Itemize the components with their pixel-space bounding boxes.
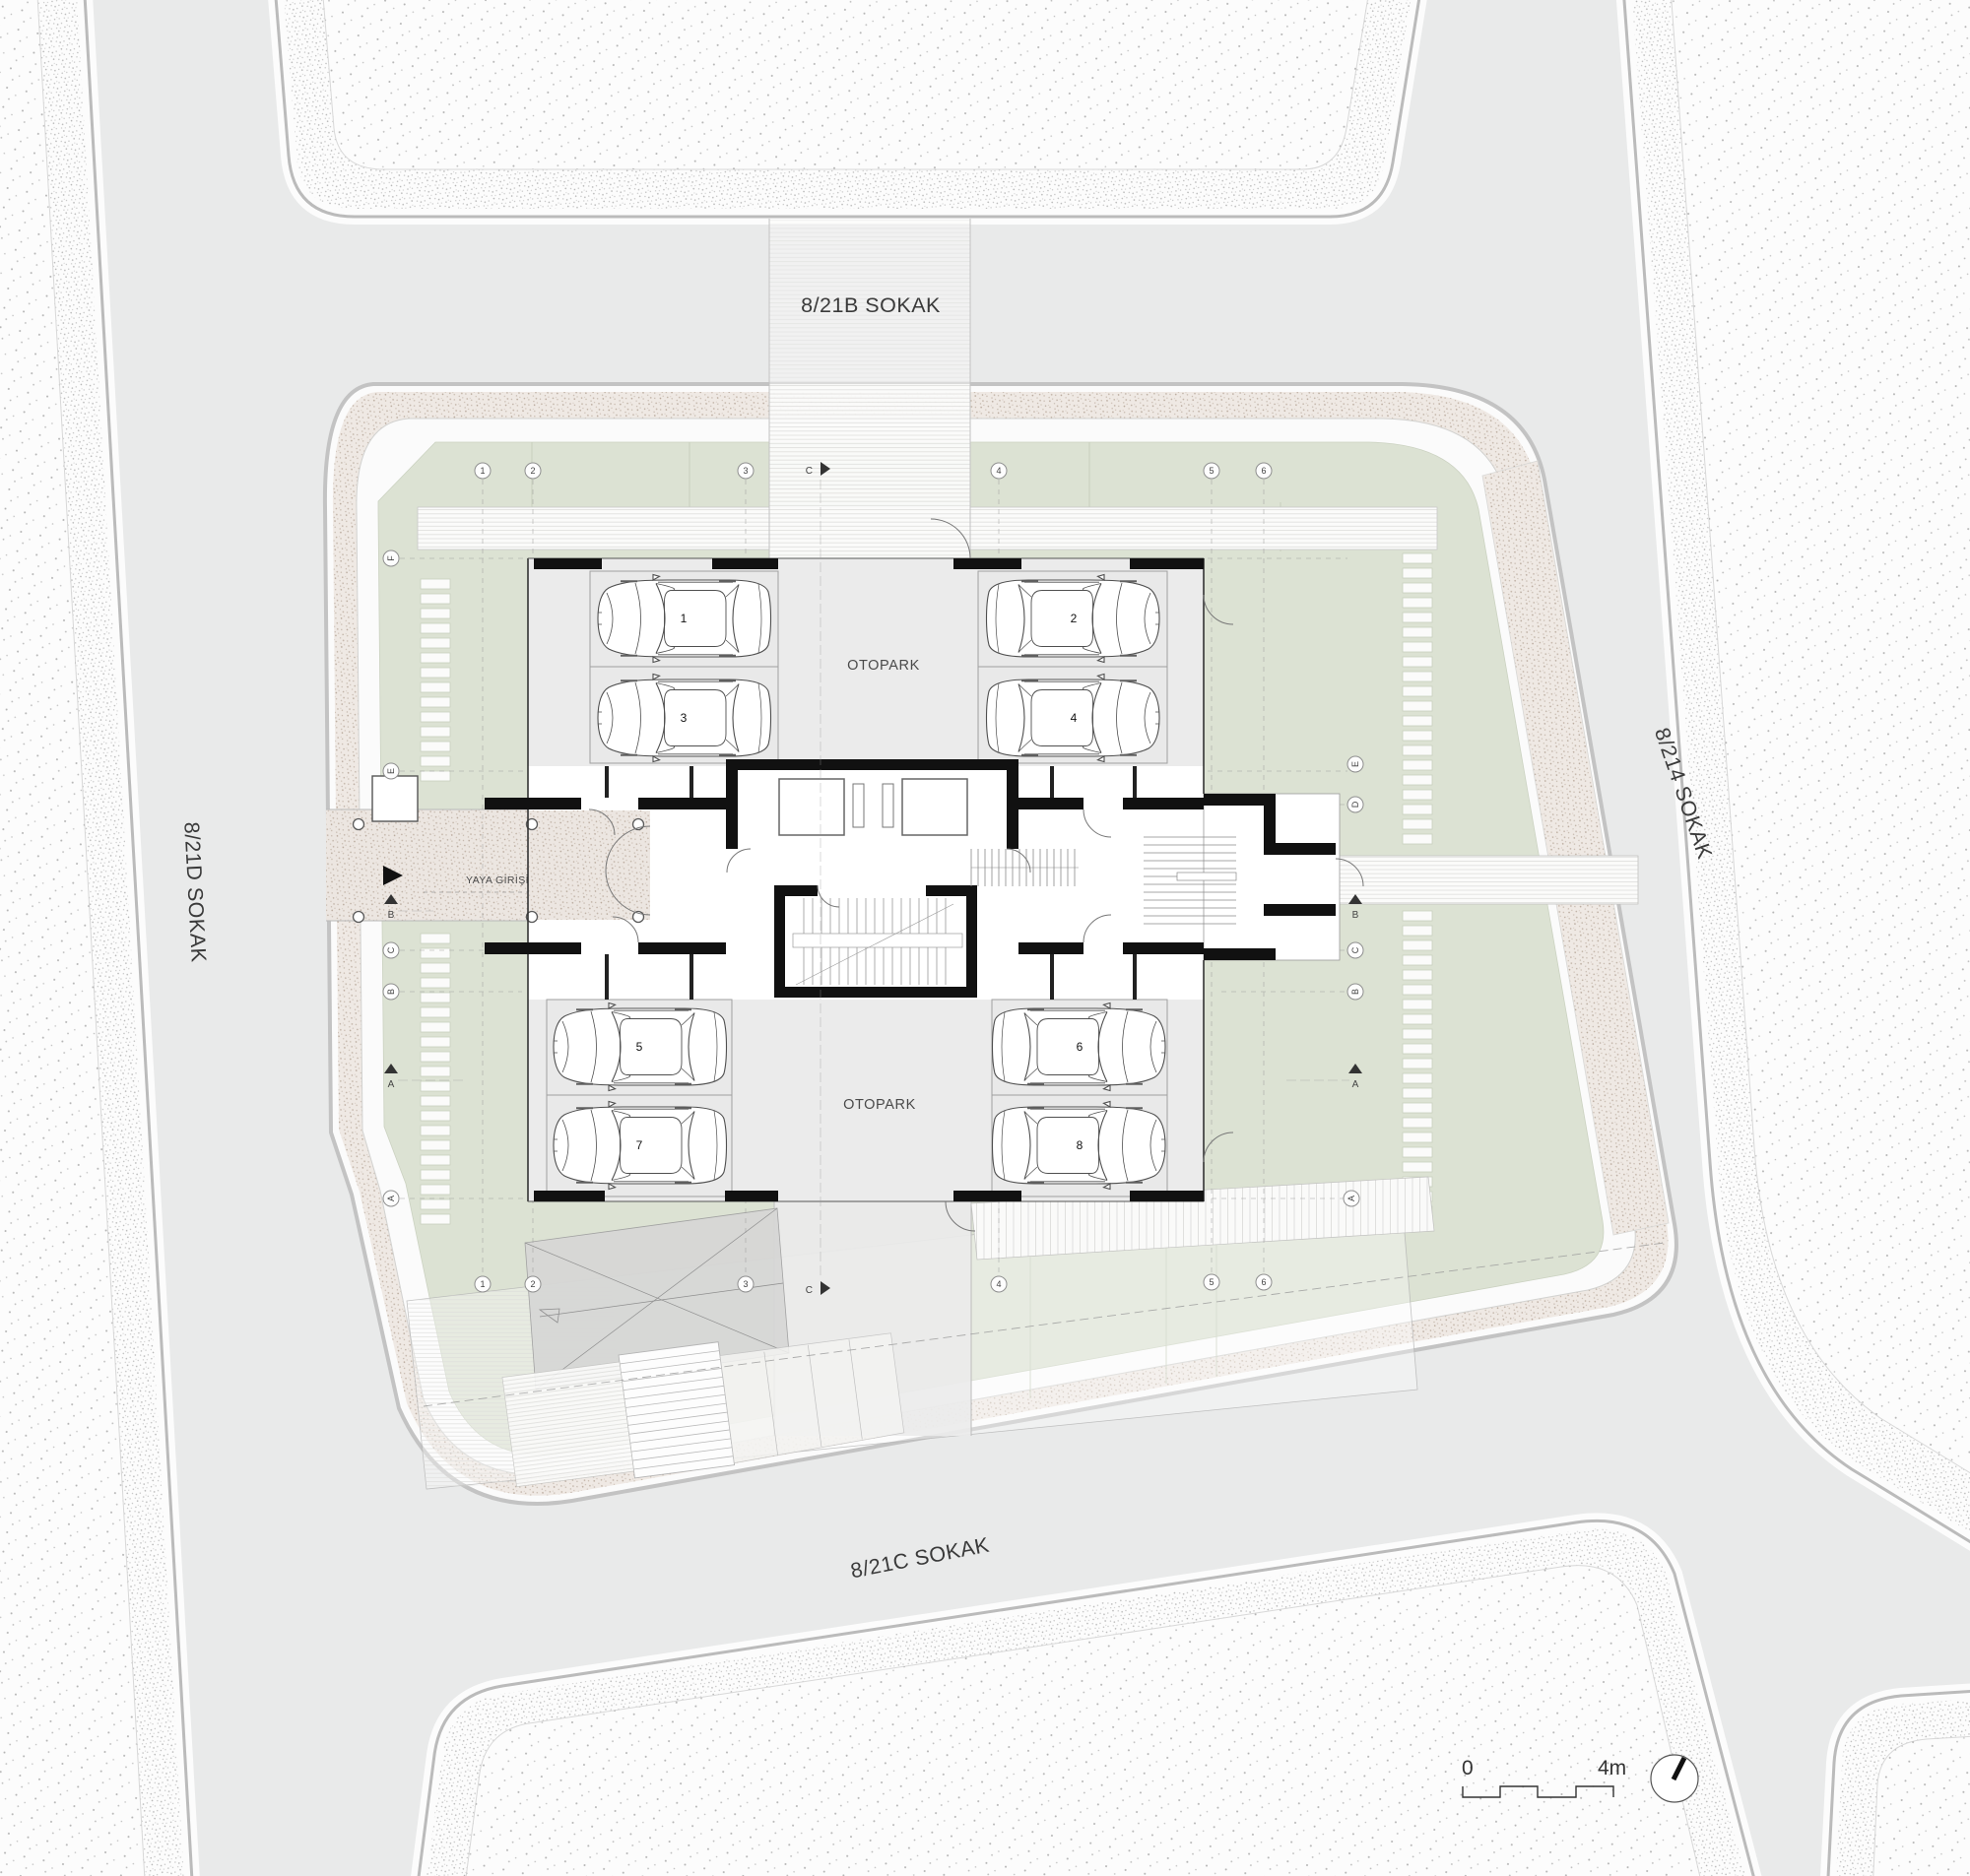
svg-text:B: B	[1352, 910, 1359, 921]
svg-text:3: 3	[743, 1279, 748, 1289]
svg-text:6: 6	[1077, 1040, 1083, 1054]
svg-text:8: 8	[1077, 1138, 1083, 1152]
svg-text:B: B	[388, 910, 395, 921]
svg-text:C: C	[806, 466, 813, 477]
svg-text:B: B	[1350, 989, 1360, 995]
svg-text:OTOPARK: OTOPARK	[843, 1097, 916, 1113]
svg-text:3: 3	[743, 466, 748, 476]
svg-text:F: F	[386, 555, 396, 561]
svg-text:5: 5	[636, 1040, 643, 1054]
svg-text:0: 0	[1462, 1757, 1474, 1779]
svg-text:C: C	[386, 946, 396, 953]
svg-text:1: 1	[480, 466, 485, 476]
svg-text:7: 7	[636, 1138, 643, 1152]
svg-text:6: 6	[1261, 1277, 1266, 1287]
svg-text:5: 5	[1209, 1277, 1214, 1287]
svg-text:B: B	[386, 989, 396, 995]
svg-text:C: C	[806, 1285, 813, 1296]
svg-text:YAYA GİRİŞİ: YAYA GİRİŞİ	[466, 873, 529, 886]
svg-text:4: 4	[1071, 711, 1078, 725]
svg-text:A: A	[1352, 1079, 1359, 1090]
svg-text:C: C	[1350, 946, 1360, 953]
svg-text:A: A	[1346, 1196, 1356, 1201]
svg-text:5: 5	[1209, 466, 1214, 476]
svg-text:2: 2	[530, 1279, 535, 1289]
svg-text:A: A	[388, 1079, 395, 1090]
svg-text:6: 6	[1261, 466, 1266, 476]
svg-text:8/21B SOKAK: 8/21B SOKAK	[801, 293, 941, 317]
svg-text:4: 4	[996, 1279, 1001, 1289]
svg-text:A: A	[386, 1196, 396, 1201]
svg-text:D: D	[1350, 801, 1360, 808]
svg-text:1: 1	[681, 612, 688, 625]
svg-text:4: 4	[996, 466, 1001, 476]
svg-text:2: 2	[1071, 612, 1078, 625]
svg-text:E: E	[1350, 761, 1360, 767]
svg-text:OTOPARK: OTOPARK	[847, 658, 920, 674]
svg-text:2: 2	[530, 466, 535, 476]
svg-text:E: E	[386, 768, 396, 774]
svg-text:1: 1	[480, 1279, 485, 1289]
svg-text:3: 3	[681, 711, 688, 725]
svg-text:4m: 4m	[1598, 1757, 1626, 1779]
